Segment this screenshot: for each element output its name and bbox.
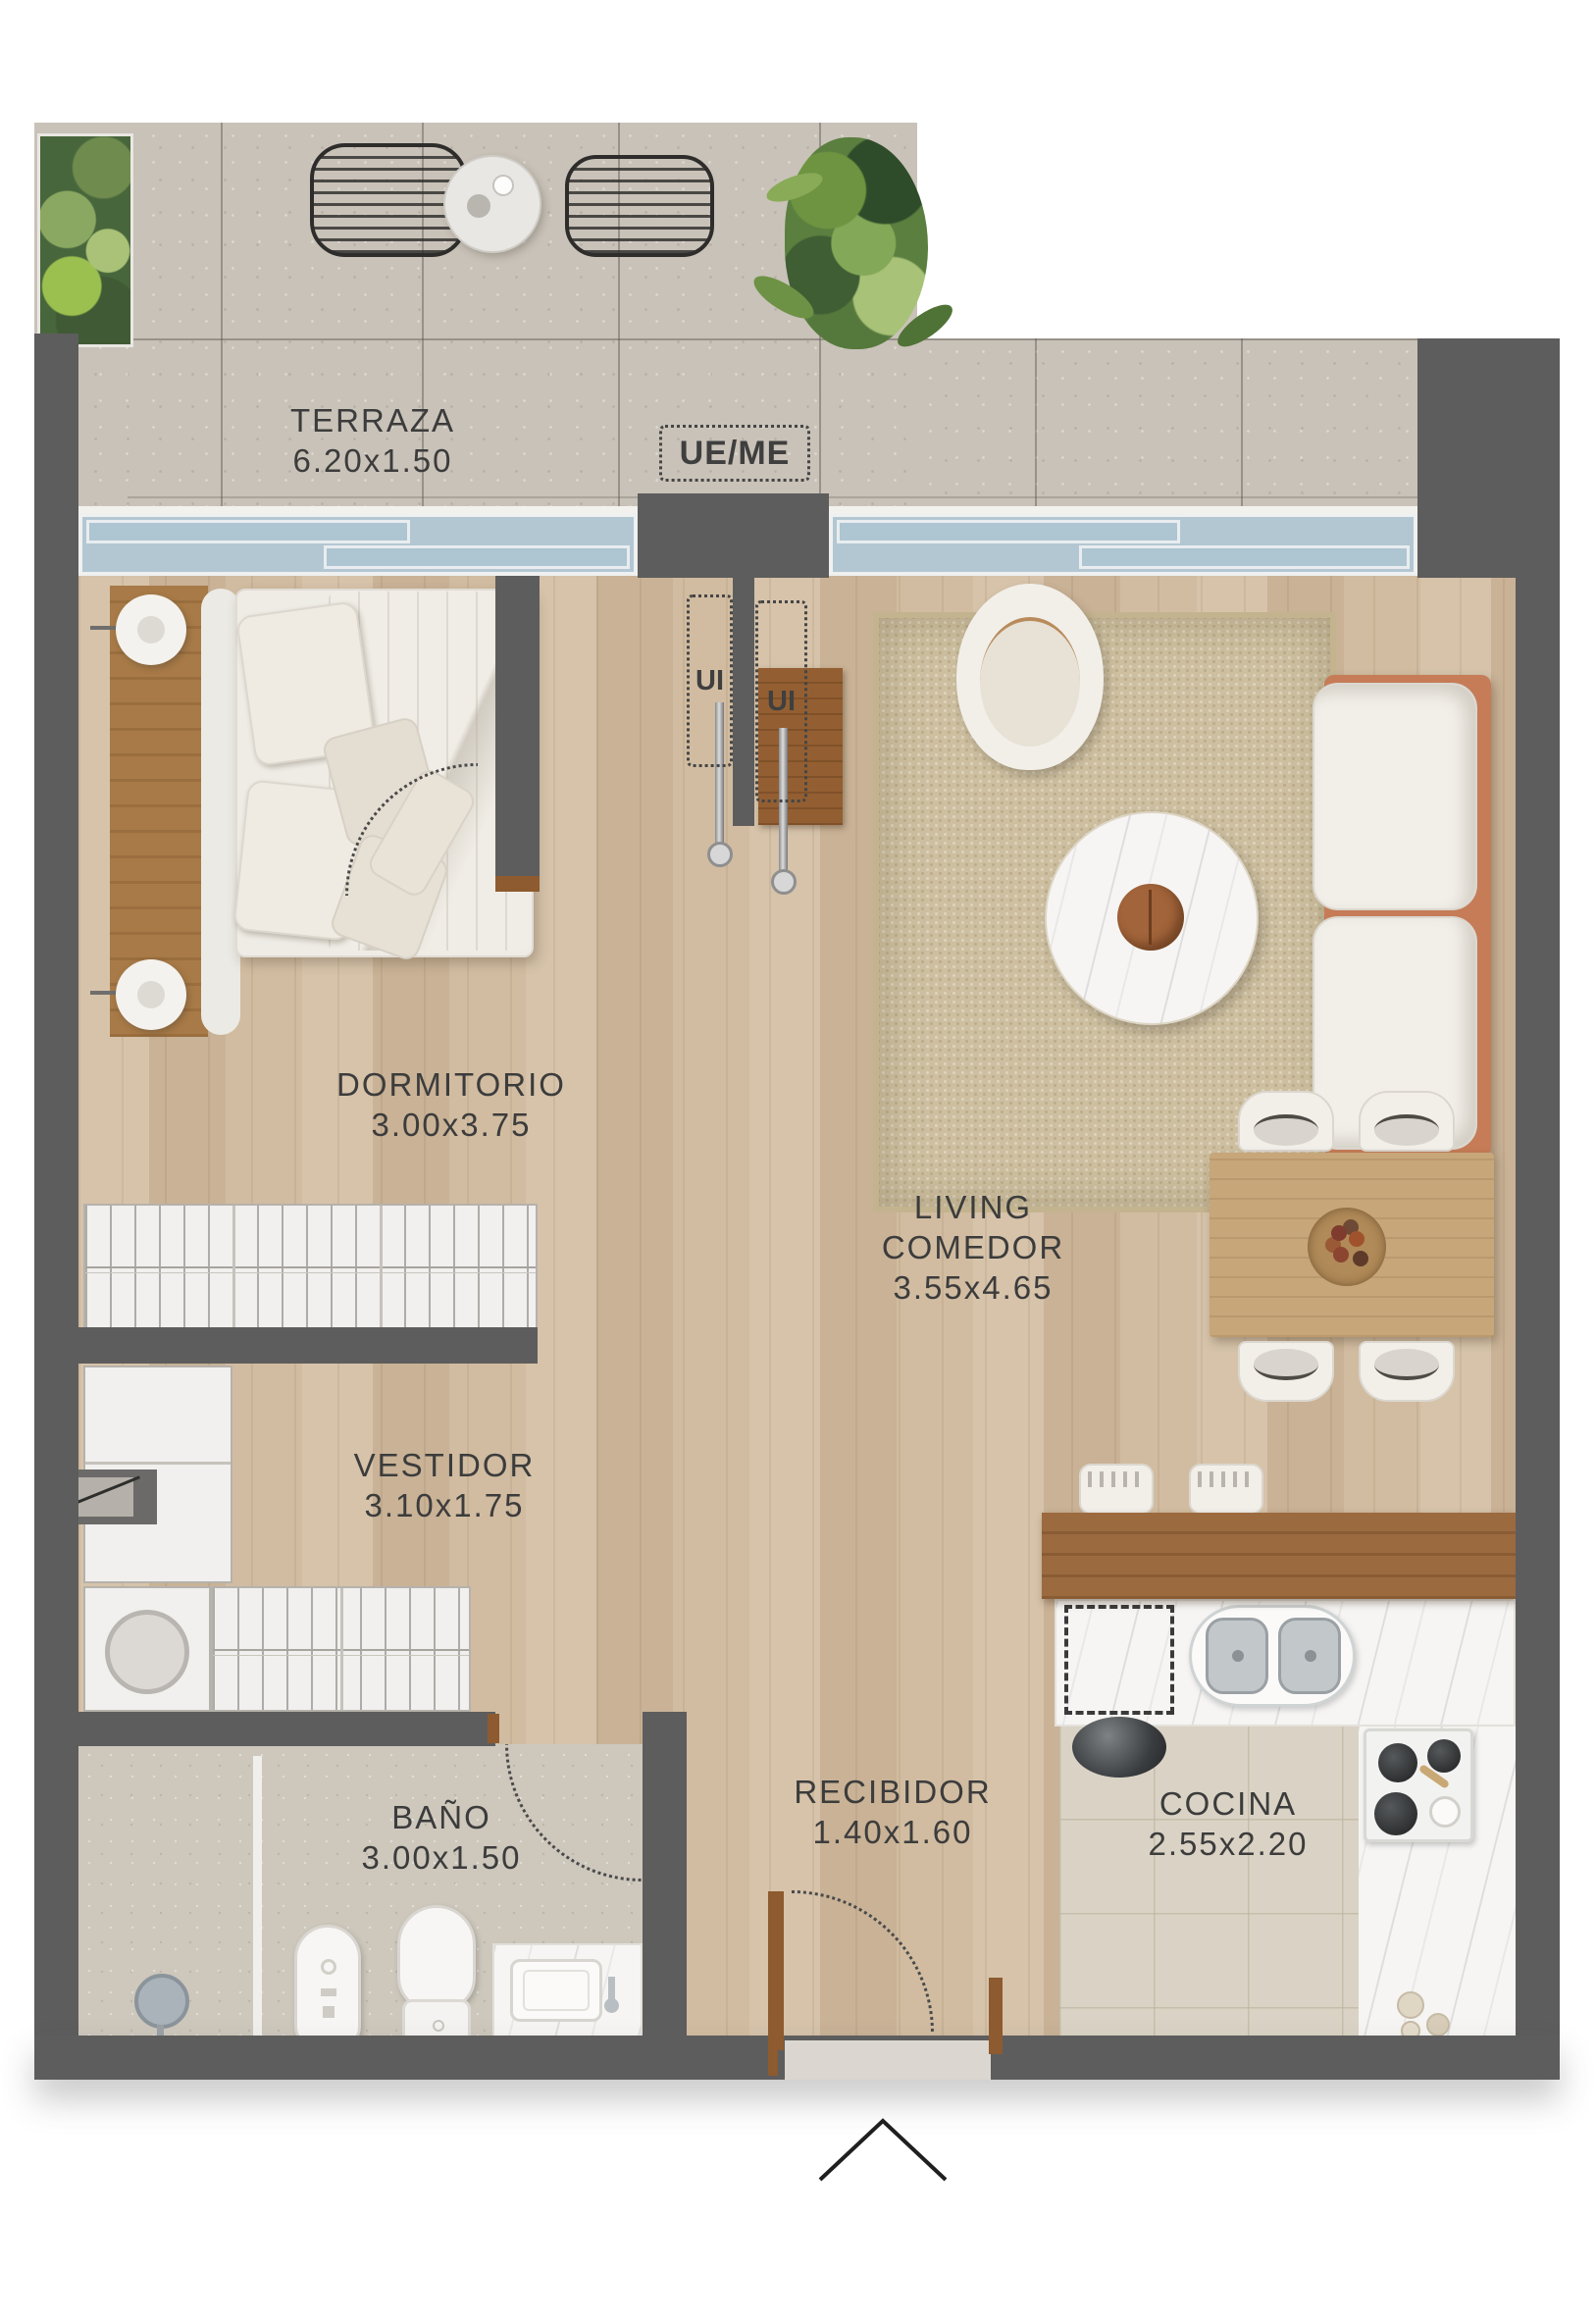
sofa bbox=[1324, 675, 1491, 1158]
arc-circle bbox=[345, 763, 478, 896]
wall-left bbox=[34, 334, 78, 2080]
floor-plan: UE/ME UI UI TERRAZA 6.20x1.50 DORMITORIO… bbox=[0, 0, 1596, 2320]
bedroom-wardrobe bbox=[83, 1204, 538, 1329]
dining-chair bbox=[1359, 1341, 1455, 1402]
cup-icon bbox=[492, 175, 514, 196]
sink-basin-line bbox=[523, 1970, 590, 2011]
ui-label: UI bbox=[767, 686, 796, 718]
bidet bbox=[294, 1925, 361, 2048]
room-dims: 1.40x1.60 bbox=[794, 1812, 991, 1852]
wall-corner-top-right bbox=[1417, 338, 1560, 578]
room-name: DORMITORIO bbox=[336, 1064, 566, 1105]
lamp-center bbox=[137, 981, 165, 1008]
sliding-window-panel bbox=[837, 520, 1180, 543]
breakfast-bar bbox=[1042, 1513, 1516, 1599]
room-dims: 3.10x1.75 bbox=[354, 1485, 536, 1525]
dining-chair bbox=[1359, 1091, 1455, 1152]
ui-annotation-right: UI bbox=[755, 600, 807, 802]
fruit-bowl bbox=[1308, 1208, 1386, 1286]
room-name: TERRAZA bbox=[290, 400, 455, 440]
room-name: LIVING bbox=[882, 1187, 1064, 1227]
dining-chair bbox=[1238, 1341, 1334, 1402]
coffee-table bbox=[1045, 811, 1259, 1025]
terrace-tile-joint bbox=[1241, 338, 1243, 535]
terrace-tile-joint bbox=[221, 123, 223, 535]
room-label-living-comedor: LIVING COMEDOR 3.55x4.65 bbox=[882, 1187, 1064, 1308]
room-name: RECIBIDOR bbox=[794, 1772, 991, 1812]
dining-chair-seat bbox=[1254, 1114, 1318, 1146]
double-sink bbox=[1189, 1605, 1356, 1707]
terrace-floor-extension bbox=[917, 338, 1417, 535]
room-dims: 2.55x2.20 bbox=[1149, 1824, 1309, 1864]
arc-circle bbox=[792, 1890, 934, 2033]
burner-icon bbox=[1378, 1743, 1417, 1782]
bedside-lamp bbox=[116, 594, 186, 665]
ui-label: UI bbox=[695, 665, 724, 697]
bed-frame bbox=[201, 589, 240, 1035]
drain-icon bbox=[1305, 1650, 1316, 1662]
entrance-door-jamb bbox=[768, 2050, 778, 2076]
wardrobe-divider bbox=[232, 1206, 235, 1327]
room-name: VESTIDOR bbox=[354, 1445, 536, 1485]
lamp-center bbox=[137, 616, 165, 644]
wall-sliding-door-stub bbox=[733, 578, 754, 826]
terrace-chair bbox=[565, 155, 714, 257]
stool-slats bbox=[1088, 1471, 1145, 1487]
bathroom-vanity bbox=[492, 1943, 643, 2037]
bedside-lamp bbox=[116, 959, 186, 1030]
washing-machine-icon bbox=[105, 1610, 189, 1694]
cup-icon bbox=[467, 194, 490, 218]
drain-icon bbox=[1232, 1650, 1244, 1662]
room-label-bano: BAÑO 3.00x1.50 bbox=[362, 1797, 522, 1878]
shower-valve-icon bbox=[134, 1974, 189, 2029]
entrance-direction-icon bbox=[814, 2115, 952, 2186]
sink-bowl bbox=[1278, 1618, 1341, 1694]
room-name: COMEDOR bbox=[882, 1227, 1064, 1267]
armchair bbox=[956, 584, 1104, 770]
room-dims: 3.00x1.50 bbox=[362, 1837, 522, 1878]
bedroom-window-frame bbox=[78, 513, 638, 576]
dining-chair-seat bbox=[1374, 1114, 1439, 1146]
wooden-bowl bbox=[1117, 884, 1184, 951]
armchair-seat bbox=[980, 617, 1080, 747]
terrace-tile-joint bbox=[34, 338, 1417, 340]
bidet-detail bbox=[321, 1988, 336, 1996]
terrace-plant bbox=[785, 137, 928, 349]
dining-chair-seat bbox=[1374, 1349, 1439, 1380]
wall-vestidor-bathroom bbox=[34, 1712, 495, 1746]
ui-annotation-left: UI bbox=[687, 594, 733, 767]
wardrobe-rail bbox=[85, 1266, 536, 1273]
room-label-terraza: TERRAZA 6.20x1.50 bbox=[290, 400, 455, 481]
room-label-dormitorio: DORMITORIO 3.00x3.75 bbox=[336, 1064, 566, 1145]
bidet-faucet bbox=[321, 1959, 336, 1975]
dining-chair bbox=[1238, 1091, 1334, 1152]
sliding-door-handle-icon bbox=[707, 842, 733, 867]
burner-icon bbox=[1374, 1792, 1417, 1835]
bidet-detail bbox=[323, 2006, 335, 2018]
sliding-door-handle-icon bbox=[771, 869, 797, 895]
fruit-icon bbox=[1331, 1225, 1347, 1241]
cooktop bbox=[1364, 1728, 1473, 1842]
sliding-window-panel bbox=[86, 520, 410, 543]
sink-bowl bbox=[1206, 1618, 1268, 1694]
ue-me-annotation: UE/ME bbox=[659, 425, 810, 482]
bedroom-door-swing-arc bbox=[345, 763, 478, 896]
bedroom-door-jamb bbox=[495, 876, 540, 892]
wall-bedroom-vestidor bbox=[34, 1327, 538, 1364]
terrace-planter bbox=[37, 133, 133, 347]
room-label-vestidor: VESTIDOR 3.10x1.75 bbox=[354, 1445, 536, 1525]
wardrobe-divider bbox=[340, 1588, 343, 1710]
toilet-bowl bbox=[397, 1905, 476, 2011]
vestidor-wardrobe bbox=[211, 1586, 471, 1712]
sliding-window-panel bbox=[324, 545, 630, 569]
terrace-side-table bbox=[443, 155, 541, 253]
laundry-unit bbox=[83, 1586, 211, 1712]
dining-chair-seat bbox=[1254, 1349, 1318, 1380]
wall-bathroom-recibidor bbox=[643, 1712, 687, 2036]
terrace-tile-joint bbox=[1035, 338, 1037, 535]
pot-icon bbox=[1429, 1796, 1461, 1828]
bar-stool bbox=[1189, 1464, 1263, 1515]
entrance-threshold bbox=[785, 2040, 991, 2080]
wardrobe-divider bbox=[380, 1206, 383, 1327]
room-dims: 6.20x1.50 bbox=[290, 440, 455, 481]
shower-screen bbox=[253, 1756, 262, 2036]
sofa-cushion bbox=[1313, 683, 1477, 910]
ue-me-label: UE/ME bbox=[680, 435, 791, 473]
room-dims: 3.00x3.75 bbox=[336, 1105, 566, 1145]
arc-circle bbox=[505, 1744, 643, 1882]
living-window-frame bbox=[829, 513, 1417, 576]
room-label-cocina: COCINA 2.55x2.20 bbox=[1149, 1783, 1309, 1864]
entrance-door-jamb bbox=[989, 1978, 1003, 2054]
bathroom-door-swing-arc bbox=[505, 1744, 643, 1882]
burner-icon bbox=[1427, 1739, 1461, 1773]
cabinet-shelf-line bbox=[85, 1462, 231, 1465]
faucet-icon bbox=[604, 1998, 619, 2013]
jar-icon bbox=[1426, 2013, 1450, 2036]
appliance-placeholder-box bbox=[1064, 1605, 1174, 1715]
flush-button-icon bbox=[433, 2020, 444, 2032]
bathroom-door-jamb bbox=[488, 1714, 499, 1743]
bowl-split-line bbox=[1149, 890, 1152, 945]
wall-right bbox=[1516, 338, 1560, 2080]
dining-table bbox=[1210, 1153, 1494, 1337]
entrance-door-swing-arc bbox=[792, 1890, 934, 2033]
sliding-window-panel bbox=[1079, 545, 1410, 569]
stool-slats bbox=[1198, 1471, 1255, 1487]
extractor-fan-icon bbox=[1072, 1717, 1166, 1778]
room-name: BAÑO bbox=[362, 1797, 522, 1837]
jar-icon bbox=[1397, 1991, 1424, 2019]
room-dims: 3.55x4.65 bbox=[882, 1267, 1064, 1308]
room-name: COCINA bbox=[1149, 1783, 1309, 1824]
entrance-door-jamb bbox=[768, 1891, 784, 2050]
bar-stool bbox=[1079, 1464, 1154, 1515]
wall-between-windows bbox=[638, 493, 829, 578]
wall-bedroom-living bbox=[495, 576, 540, 876]
room-label-recibidor: RECIBIDOR 1.40x1.60 bbox=[794, 1772, 991, 1852]
vanity-sink bbox=[510, 1959, 602, 2022]
